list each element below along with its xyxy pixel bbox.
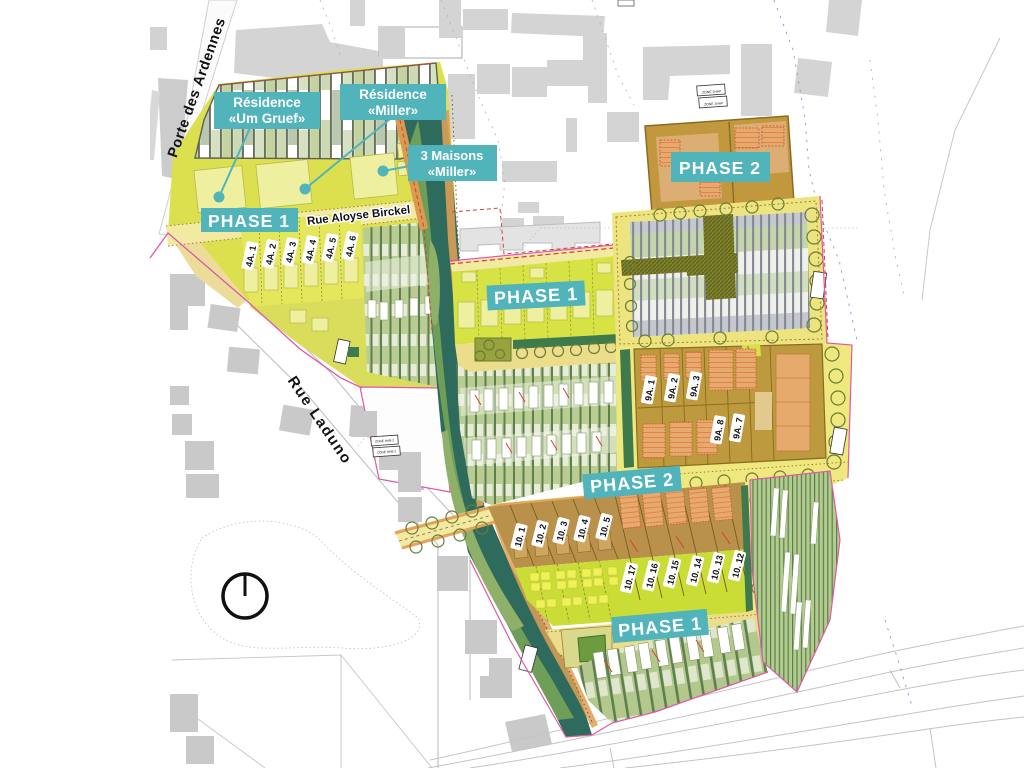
svg-text:PHASE 1: PHASE 1 — [208, 211, 290, 231]
svg-text:«Um Gruef»: «Um Gruef» — [229, 111, 306, 126]
svg-text:«Miller»: «Miller» — [428, 164, 476, 179]
svg-text:Résidence: Résidence — [359, 87, 427, 102]
svg-text:3 Maisons: 3 Maisons — [421, 148, 484, 163]
svg-text:PHASE 2: PHASE 2 — [679, 158, 761, 178]
svg-text:«Miller»: «Miller» — [368, 103, 418, 118]
svg-text:Résidence: Résidence — [233, 95, 301, 110]
